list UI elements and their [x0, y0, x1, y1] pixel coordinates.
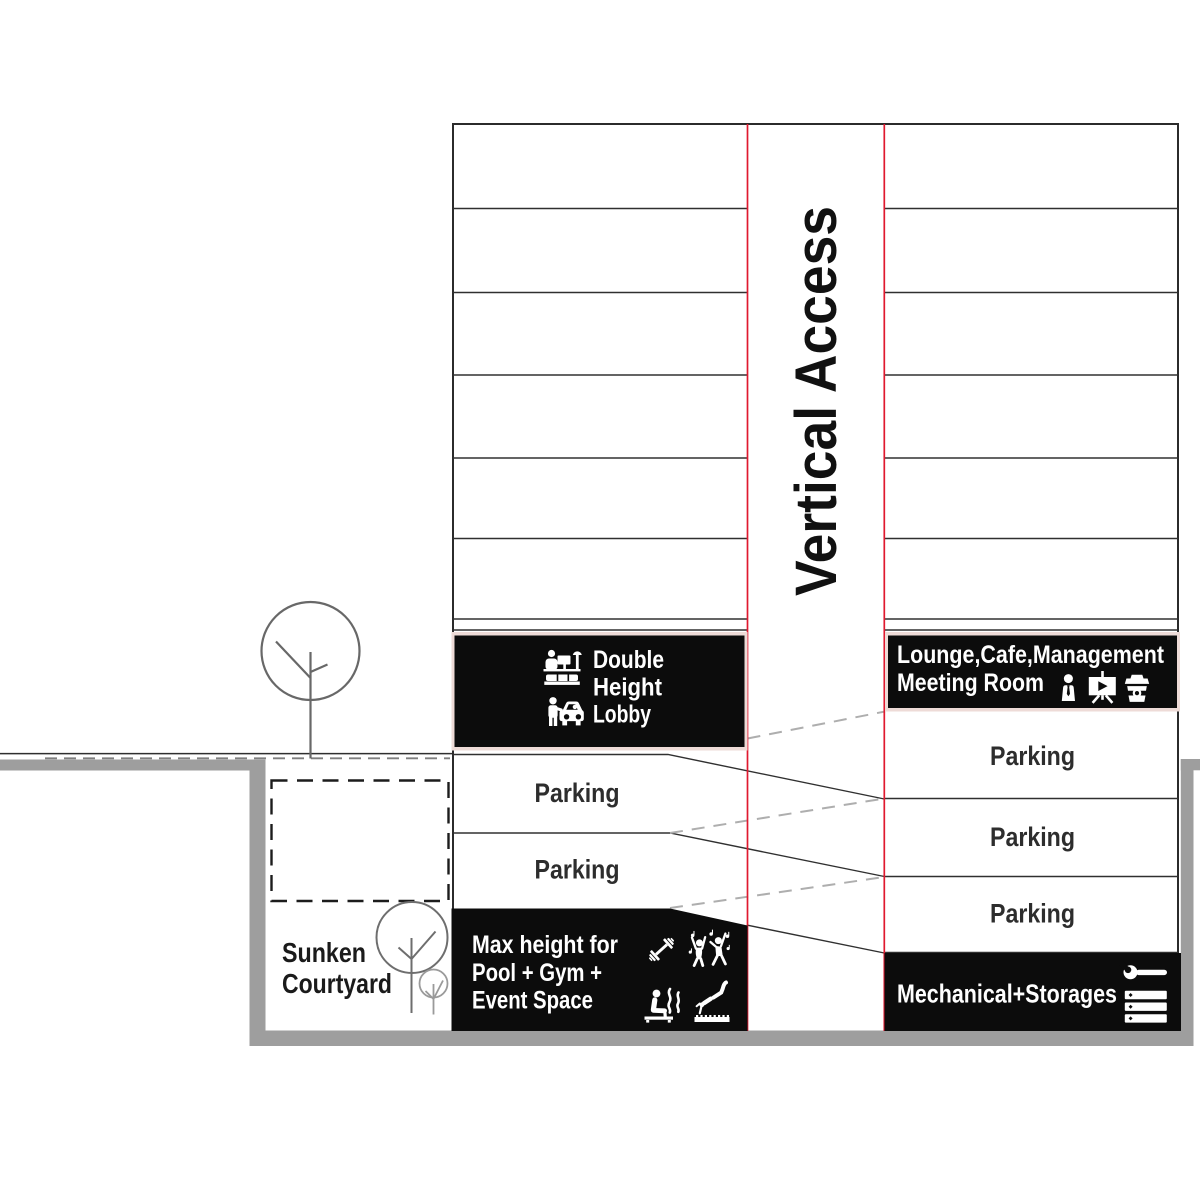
svg-text:Parking: Parking — [535, 778, 620, 808]
svg-text:Double: Double — [593, 646, 664, 674]
svg-text:Pool + Gym +: Pool + Gym + — [472, 959, 602, 987]
svg-text:Sunken: Sunken — [282, 937, 366, 968]
svg-text:Event Space: Event Space — [472, 987, 593, 1015]
svg-text:Meeting Room: Meeting Room — [897, 669, 1044, 697]
svg-text:Parking: Parking — [535, 855, 620, 885]
svg-text:Lounge,Cafe,Management: Lounge,Cafe,Management — [897, 641, 1165, 669]
svg-text:Courtyard: Courtyard — [282, 968, 392, 999]
svg-text:Lobby: Lobby — [593, 701, 651, 729]
svg-text:Parking: Parking — [990, 741, 1075, 771]
svg-text:Height: Height — [593, 674, 663, 702]
svg-text:Mechanical+Storages: Mechanical+Storages — [897, 979, 1117, 1009]
svg-text:Vertical Access: Vertical Access — [784, 206, 849, 596]
svg-text:Max height for: Max height for — [472, 931, 618, 959]
svg-text:Parking: Parking — [990, 899, 1075, 929]
svg-text:Parking: Parking — [990, 822, 1075, 852]
